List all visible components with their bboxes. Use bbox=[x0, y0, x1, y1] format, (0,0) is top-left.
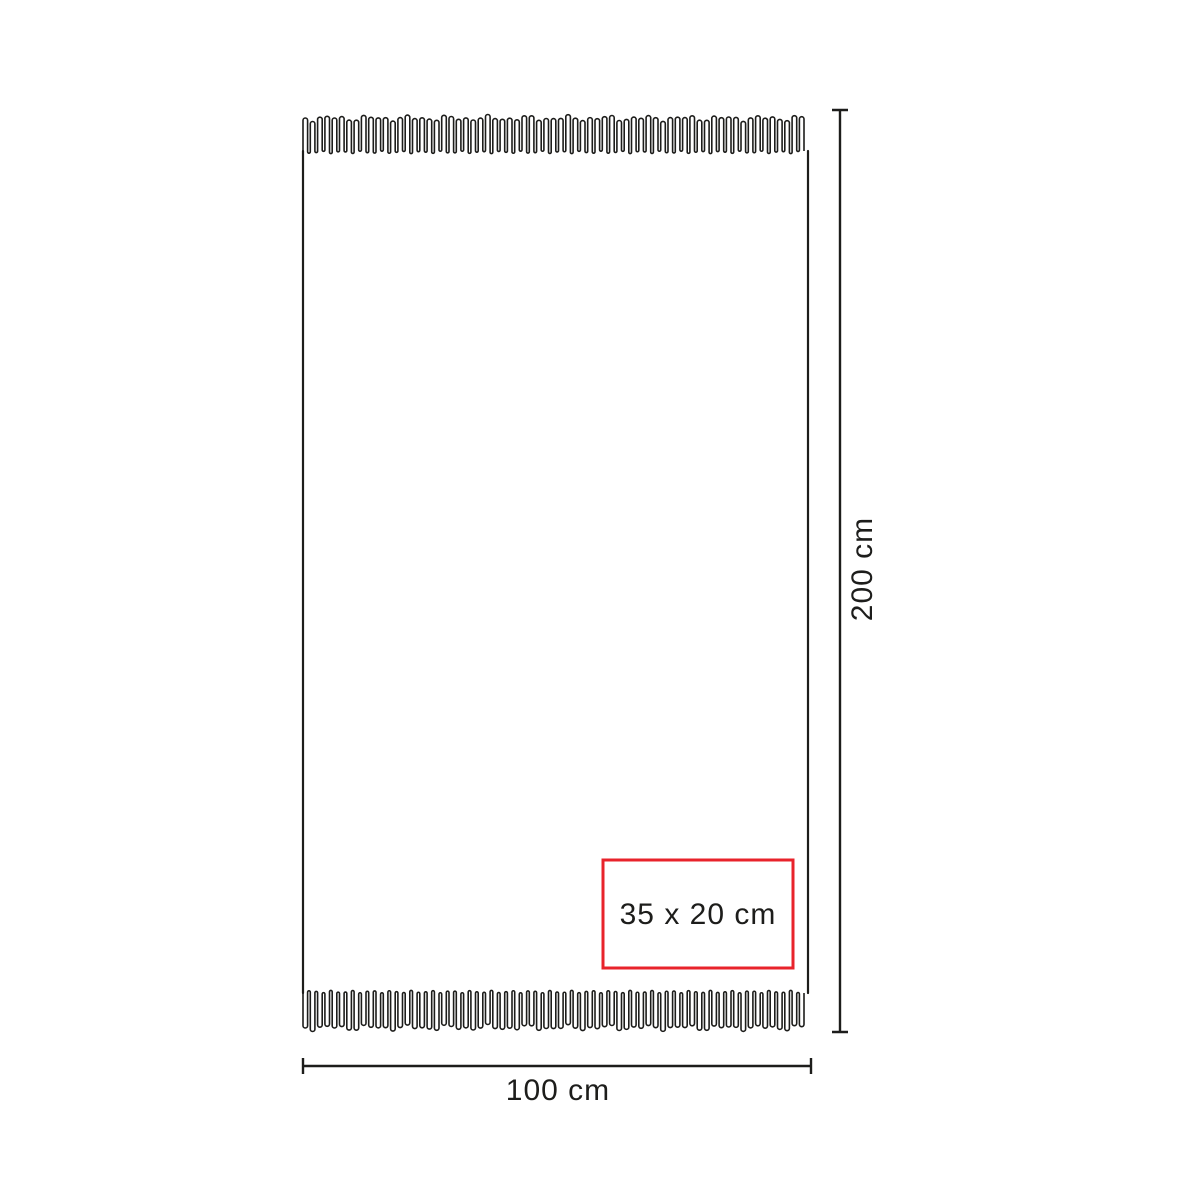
height-dimension-label: 200 cm bbox=[846, 517, 879, 621]
diagram-canvas: 200 cm 100 cm 35 x 20 cm bbox=[0, 0, 1200, 1200]
towel-bottom-fringe bbox=[303, 990, 804, 1031]
towel-dimension-diagram: 200 cm 100 cm 35 x 20 cm bbox=[0, 0, 1200, 1200]
print-area-label: 35 x 20 cm bbox=[620, 898, 777, 931]
towel-top-fringe bbox=[303, 115, 804, 154]
width-dimension-label: 100 cm bbox=[506, 1074, 610, 1107]
width-dimension-line bbox=[303, 1058, 811, 1074]
